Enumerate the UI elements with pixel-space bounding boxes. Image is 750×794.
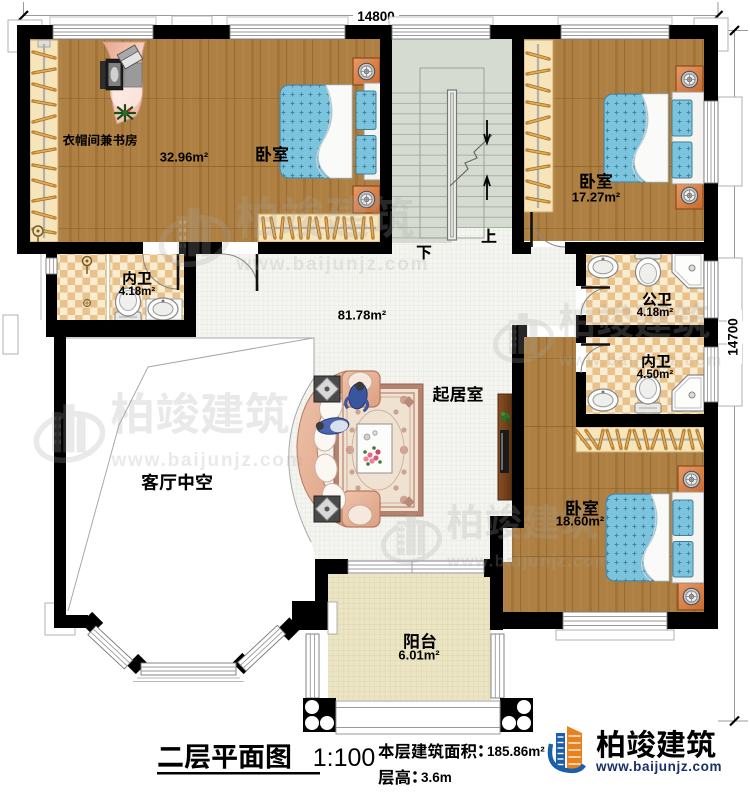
svg-text:www.baijunjz.com: www.baijunjz.com bbox=[110, 450, 304, 471]
svg-text:81.78m²: 81.78m² bbox=[338, 308, 387, 323]
svg-text:6.01m²: 6.01m² bbox=[398, 648, 440, 663]
svg-text:www.baijunjz.com: www.baijunjz.com bbox=[558, 351, 723, 369]
svg-text:4.18m²: 4.18m² bbox=[637, 307, 674, 319]
svg-text:4.18m²: 4.18m² bbox=[119, 286, 156, 298]
svg-text:185.86m²: 185.86m² bbox=[487, 744, 545, 759]
svg-text:4.50m²: 4.50m² bbox=[637, 369, 674, 381]
svg-text:www.baijunjz.com: www.baijunjz.com bbox=[446, 552, 611, 570]
svg-text:www.baijunjz.com: www.baijunjz.com bbox=[595, 759, 722, 774]
svg-text:18.60m²: 18.60m² bbox=[556, 514, 605, 529]
svg-text:32.96m²: 32.96m² bbox=[160, 150, 209, 165]
svg-text:1:100: 1:100 bbox=[313, 744, 376, 772]
svg-text:14700: 14700 bbox=[726, 318, 741, 356]
svg-text:3.6m: 3.6m bbox=[421, 770, 452, 785]
svg-text:www.baijunjz.com: www.baijunjz.com bbox=[235, 254, 429, 275]
svg-text:17.27m²: 17.27m² bbox=[572, 190, 621, 205]
